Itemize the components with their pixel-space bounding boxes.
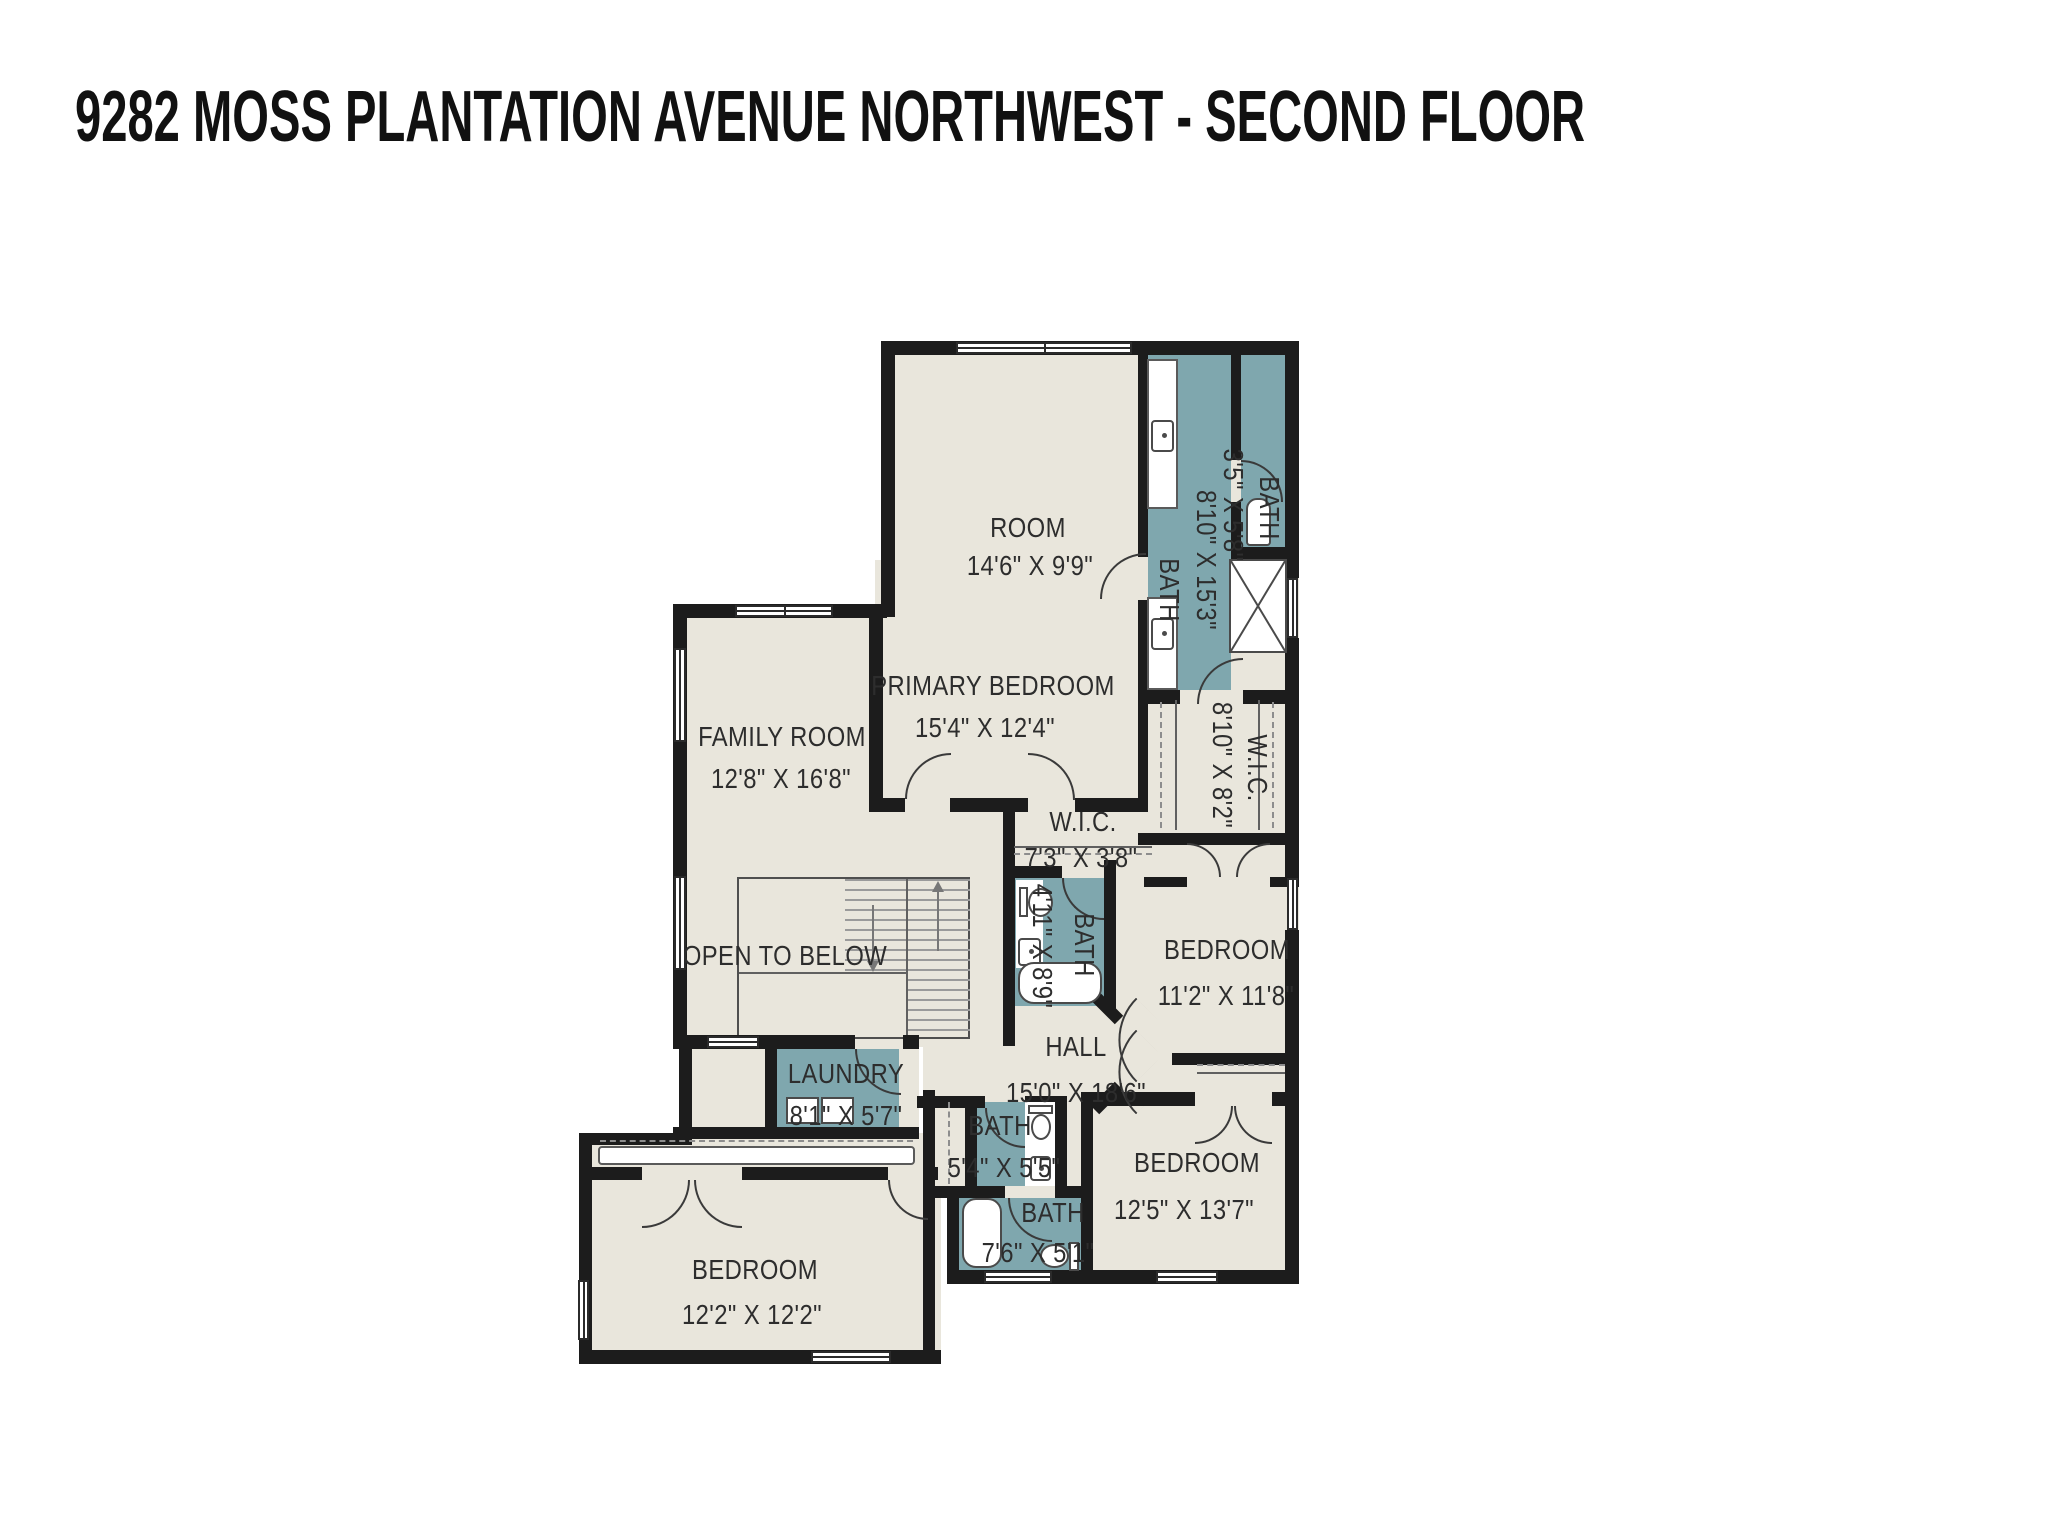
- bedroom-ne-name: BEDROOM: [1164, 934, 1290, 966]
- wall: [1138, 704, 1148, 812]
- wall: [1003, 806, 1015, 1046]
- wall: [923, 1186, 1005, 1198]
- laundry-dims: 8'1" X 5'7": [790, 1100, 903, 1132]
- wall: [1231, 341, 1241, 460]
- lower-bath-name: BATH: [1021, 1197, 1084, 1229]
- wic-hall-dims: 7'3" X 3'8": [1025, 842, 1138, 874]
- window: [811, 1351, 891, 1363]
- window: [984, 1271, 1052, 1283]
- hall-dims: 15'0" X 18'6": [1006, 1077, 1146, 1109]
- closet-rail-dashed: [1160, 702, 1162, 828]
- window: [674, 648, 686, 742]
- toilet-icon: [1031, 1114, 1051, 1140]
- wall: [679, 1035, 692, 1145]
- primary-bath-name: BATH: [1153, 558, 1185, 621]
- room-name: ROOM: [990, 512, 1066, 544]
- window-mullion: [1044, 343, 1046, 353]
- lower-bath-dims: 7'6" X 5'1": [982, 1237, 1095, 1269]
- stairs-up-arrow-icon: [932, 881, 944, 892]
- wall: [1104, 860, 1116, 1011]
- wall: [947, 1186, 959, 1284]
- bedroom-sw-name: BEDROOM: [692, 1254, 818, 1286]
- corner-bath-dims: 3'5" X 5'8": [1217, 449, 1249, 562]
- wic-primary-dims: 8'10" X 8'2": [1206, 702, 1238, 828]
- stair-landing-line: [739, 972, 907, 974]
- window: [956, 342, 1132, 354]
- wic-primary-name: W.I.C.: [1241, 734, 1273, 801]
- room-dims: 14'6" X 9'9": [967, 550, 1093, 582]
- wall: [1138, 833, 1299, 845]
- family-room-dims: 12'8" X 16'8": [711, 763, 851, 795]
- stair-up-arrow-line: [937, 891, 939, 951]
- primary-bedroom-name: PRIMARY BEDROOM: [871, 670, 1115, 702]
- wall: [1285, 638, 1299, 880]
- wall: [903, 1035, 919, 1049]
- wall: [579, 1133, 685, 1145]
- small-bath-dims: 5'4" X 5'5": [948, 1152, 1061, 1184]
- window: [707, 1036, 759, 1048]
- closet-rail-dashed: [600, 1140, 913, 1142]
- small-bath-name: BATH: [968, 1110, 1031, 1142]
- closet-rail-dashed: [1197, 1064, 1285, 1066]
- wall: [1285, 341, 1299, 578]
- window-mullion: [784, 606, 786, 616]
- shower-icon: [1229, 559, 1287, 653]
- closet-rail: [1197, 1072, 1285, 1074]
- wall: [765, 1049, 777, 1127]
- hall-bath-name: BATH: [1068, 913, 1100, 976]
- wic-hall-name: W.I.C.: [1049, 806, 1116, 838]
- window: [1156, 1271, 1218, 1283]
- wall: [950, 798, 1028, 812]
- wall: [869, 604, 883, 812]
- bedroom-se-dims: 12'5" X 13'7": [1114, 1194, 1254, 1226]
- window: [735, 605, 833, 617]
- family-room-name: FAMILY ROOM: [698, 721, 866, 753]
- corner-bath-name: BATH: [1253, 476, 1285, 539]
- open-to-below-label: OPEN TO BELOW: [683, 940, 887, 972]
- counter: [598, 1146, 915, 1165]
- bedroom-sw-dims: 12'2" X 12'2": [682, 1299, 822, 1331]
- sink-icon: [1151, 618, 1174, 650]
- wall: [1144, 877, 1187, 887]
- hall-name: HALL: [1045, 1031, 1106, 1063]
- window: [1287, 878, 1298, 930]
- wall: [742, 1167, 888, 1180]
- primary-bedroom-dims: 15'4" X 12'4": [915, 712, 1055, 744]
- stair-divider: [906, 879, 908, 1037]
- wall: [673, 1035, 855, 1049]
- stair-steps-right: [908, 879, 970, 1037]
- wall: [923, 1090, 935, 1364]
- bedroom-ne-dims: 11'2" X 11'8": [1158, 980, 1295, 1012]
- bedroom-se-name: BEDROOM: [1134, 1147, 1260, 1179]
- closet-rail: [1175, 700, 1177, 830]
- sink-icon: [1151, 420, 1174, 452]
- hall-bath-dims: 4'11" X 8'9": [1026, 884, 1058, 1009]
- laundry-name: LAUNDRY: [788, 1058, 904, 1090]
- window: [578, 1280, 589, 1340]
- window: [1287, 578, 1298, 638]
- floor-plan: ROOM 14'6" X 9'9" PRIMARY BEDROOM 15'4" …: [0, 0, 2048, 1536]
- wall: [881, 341, 895, 617]
